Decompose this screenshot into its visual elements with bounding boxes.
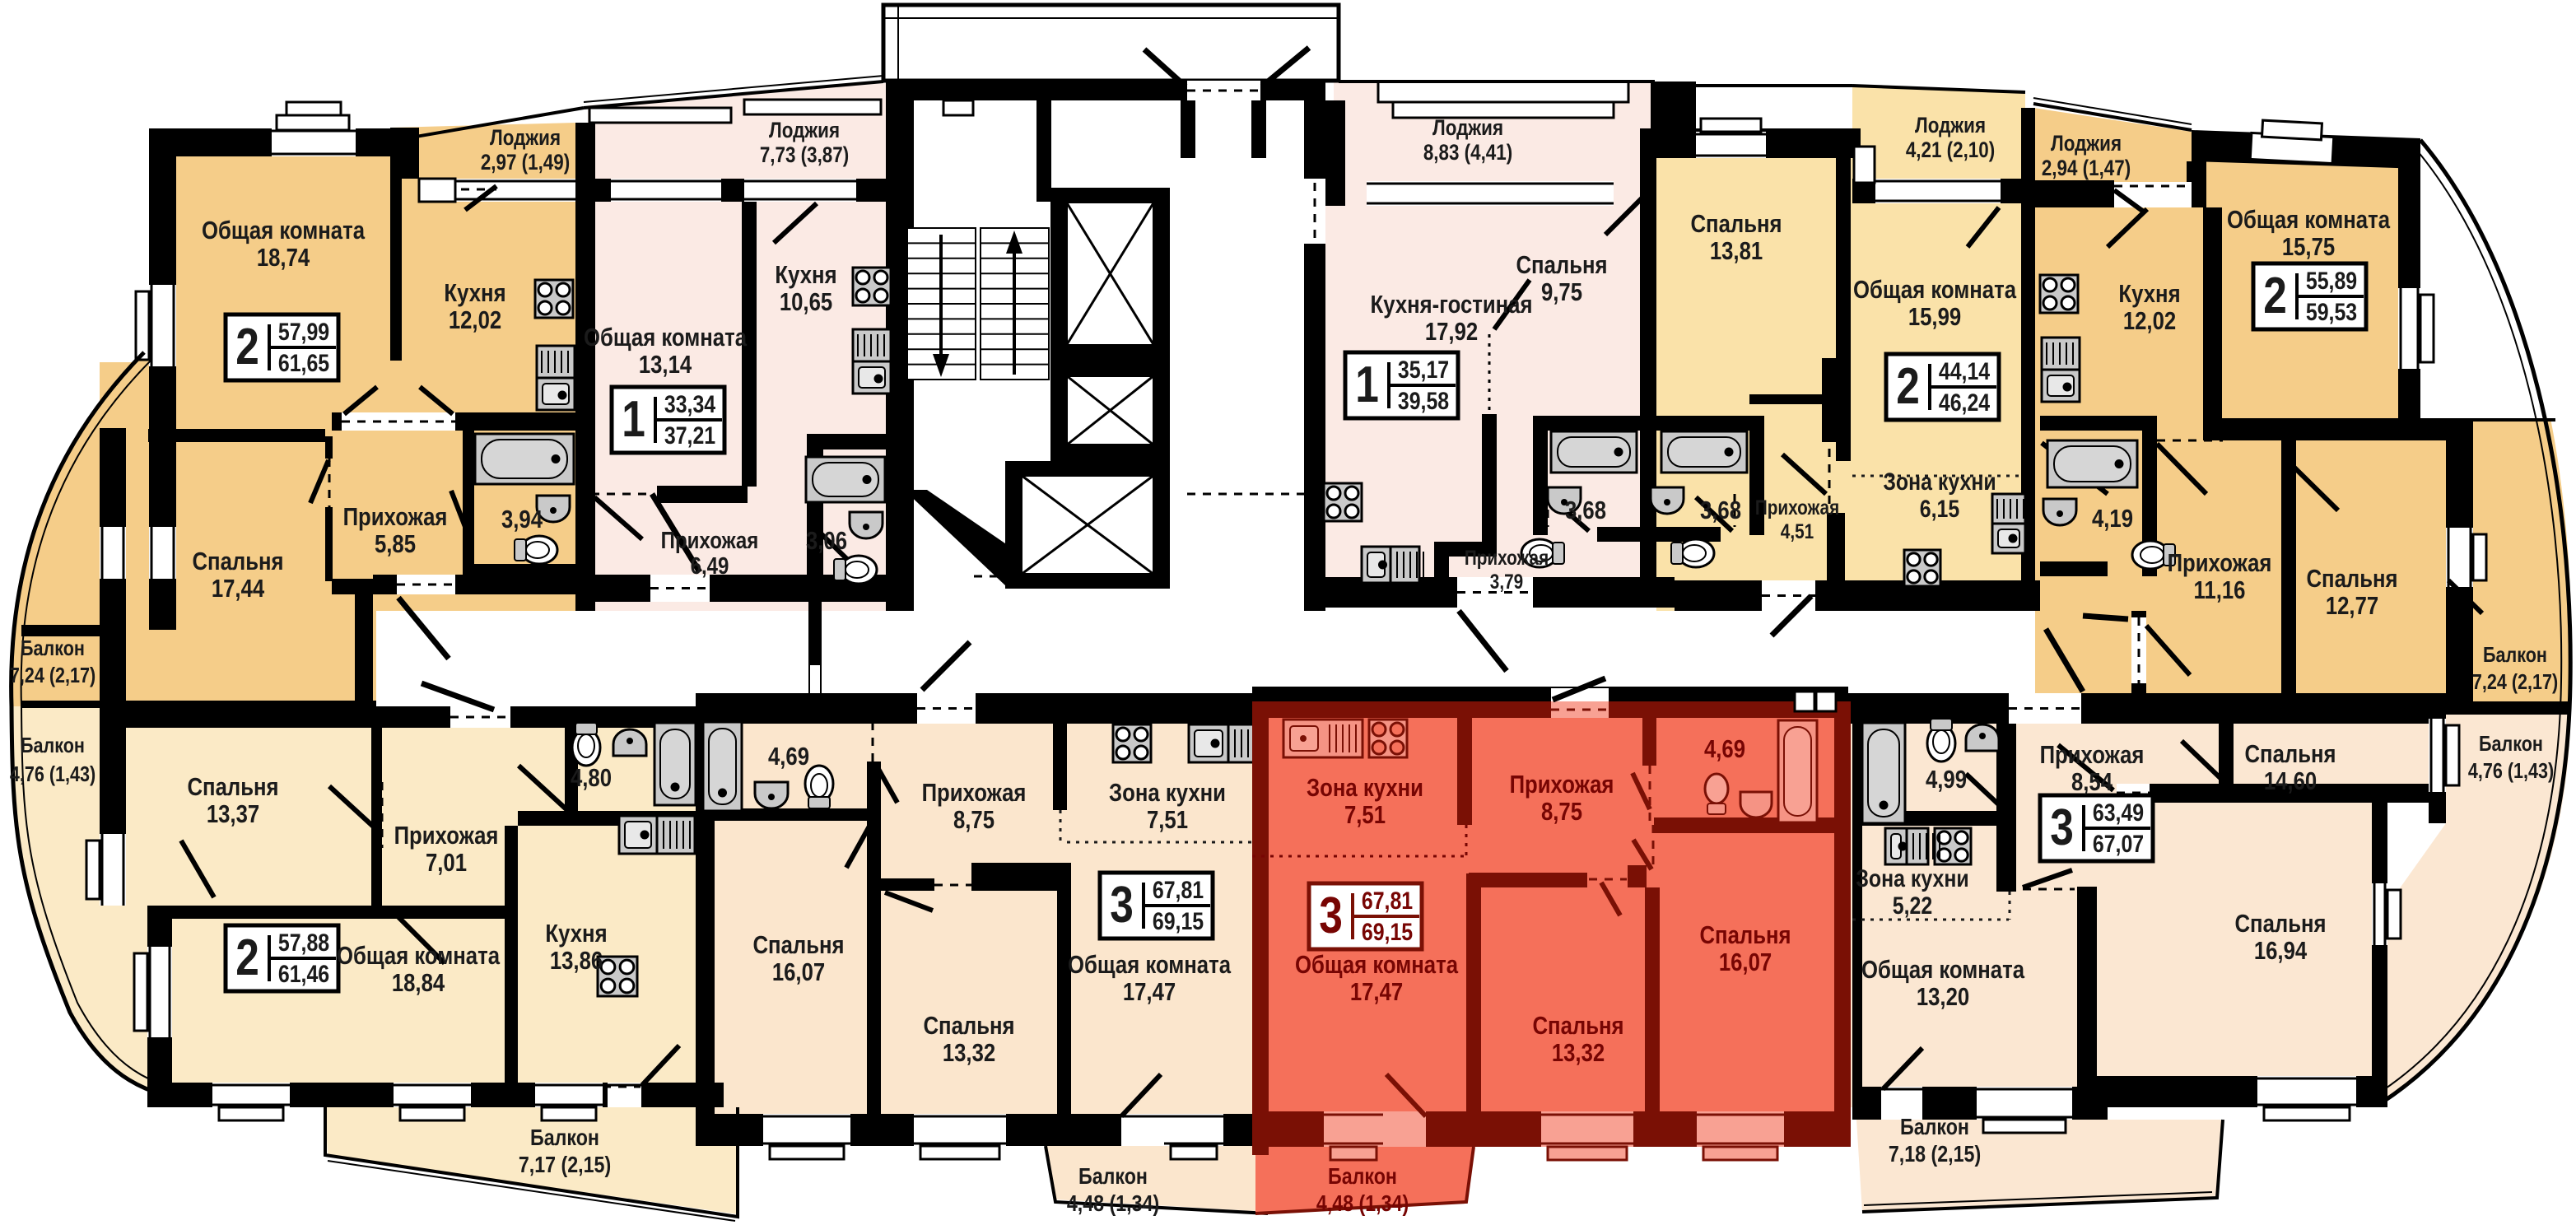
svg-text:7,01: 7,01 — [426, 849, 467, 878]
svg-text:18,84: 18,84 — [392, 969, 445, 998]
svg-text:Зона кухни: Зона кухни — [1307, 774, 1423, 803]
svg-text:63,49: 63,49 — [2093, 799, 2144, 827]
svg-text:8,83 (4,41): 8,83 (4,41) — [1423, 141, 1512, 165]
svg-text:14,60: 14,60 — [2264, 767, 2317, 796]
svg-text:Спальня: Спальня — [1690, 210, 1782, 239]
svg-text:Спальня: Спальня — [923, 1012, 1014, 1041]
svg-text:Прихожая: Прихожая — [394, 822, 499, 850]
svg-text:13,37: 13,37 — [207, 800, 259, 829]
svg-text:Кухня: Кухня — [775, 261, 836, 290]
svg-text:37,21: 37,21 — [664, 422, 715, 449]
svg-text:7,17 (2,15): 7,17 (2,15) — [519, 1153, 611, 1177]
svg-text:61,65: 61,65 — [278, 349, 329, 377]
svg-text:Спальня: Спальня — [192, 547, 283, 576]
svg-text:Спальня: Спальня — [1699, 921, 1791, 950]
svg-text:Прихожая: Прихожая — [922, 779, 1027, 808]
svg-text:6,49: 6,49 — [691, 552, 729, 580]
svg-text:2: 2 — [2263, 268, 2287, 325]
svg-text:Общая комната: Общая комната — [1295, 951, 1459, 980]
svg-text:Спальня: Спальня — [2234, 910, 2326, 939]
svg-text:Зона кухни: Зона кухни — [1856, 864, 1968, 892]
svg-text:7,18 (2,15): 7,18 (2,15) — [1889, 1142, 1981, 1167]
svg-text:8,75: 8,75 — [953, 806, 995, 835]
svg-text:3,68: 3,68 — [1565, 496, 1606, 525]
svg-text:15,99: 15,99 — [1908, 303, 1961, 332]
svg-text:Балкон: Балкон — [1078, 1164, 1148, 1189]
svg-text:35,17: 35,17 — [1398, 356, 1449, 384]
svg-text:Кухня-гостиная: Кухня-гостиная — [1371, 291, 1533, 319]
svg-text:4,69: 4,69 — [768, 743, 809, 771]
svg-text:Общая комната: Общая комната — [584, 324, 748, 352]
svg-text:Общая комната: Общая комната — [1861, 956, 2025, 985]
svg-text:67,81: 67,81 — [1153, 876, 1204, 904]
svg-text:15,75: 15,75 — [2282, 233, 2335, 262]
svg-text:4,48 (1,34): 4,48 (1,34) — [1067, 1191, 1159, 1216]
svg-text:Общая комната: Общая комната — [1068, 951, 1232, 980]
svg-text:7,24 (2,17): 7,24 (2,17) — [2472, 670, 2558, 694]
svg-text:13,20: 13,20 — [1917, 983, 1969, 1012]
svg-text:7,51: 7,51 — [1344, 801, 1386, 830]
svg-text:6,15: 6,15 — [1920, 495, 1959, 523]
svg-text:Лоджия: Лоджия — [2051, 132, 2122, 156]
svg-text:4,69: 4,69 — [1704, 735, 1745, 764]
svg-text:4,48 (1,34): 4,48 (1,34) — [1316, 1191, 1409, 1216]
svg-text:33,34: 33,34 — [664, 390, 716, 418]
svg-text:4,51: 4,51 — [1781, 519, 1814, 543]
svg-text:12,02: 12,02 — [449, 306, 501, 335]
svg-text:Прихожая: Прихожая — [1465, 546, 1549, 569]
svg-text:3,06: 3,06 — [806, 527, 847, 556]
svg-text:18,74: 18,74 — [257, 244, 310, 272]
svg-text:16,94: 16,94 — [2254, 937, 2307, 966]
svg-text:13,81: 13,81 — [1710, 237, 1763, 266]
svg-text:Кухня: Кухня — [444, 279, 505, 308]
svg-text:Балкон: Балкон — [21, 636, 85, 660]
svg-text:Прихожая: Прихожая — [343, 503, 448, 532]
svg-text:39,58: 39,58 — [1398, 387, 1449, 415]
svg-text:4,76 (1,43): 4,76 (1,43) — [10, 762, 95, 786]
svg-text:10,65: 10,65 — [780, 288, 832, 317]
svg-text:44,14: 44,14 — [1939, 357, 1991, 385]
svg-text:69,15: 69,15 — [1153, 907, 1204, 935]
svg-text:17,44: 17,44 — [212, 575, 264, 603]
svg-text:Балкон: Балкон — [530, 1125, 599, 1150]
svg-text:3,68: 3,68 — [1700, 496, 1741, 525]
svg-text:57,88: 57,88 — [278, 929, 329, 957]
svg-text:13,32: 13,32 — [943, 1039, 995, 1068]
svg-text:5,85: 5,85 — [375, 530, 416, 559]
svg-text:Прихожая: Прихожая — [2040, 741, 2145, 770]
svg-text:46,24: 46,24 — [1939, 389, 1991, 417]
svg-text:2: 2 — [1896, 358, 1920, 416]
svg-text:3,79: 3,79 — [1490, 570, 1523, 593]
svg-text:2,94 (1,47): 2,94 (1,47) — [2042, 156, 2131, 180]
svg-text:17,47: 17,47 — [1350, 978, 1403, 1007]
svg-text:Лоджия: Лоджия — [1432, 116, 1503, 140]
svg-text:59,53: 59,53 — [2306, 298, 2357, 326]
svg-text:16,07: 16,07 — [772, 958, 825, 987]
svg-text:8,54: 8,54 — [2071, 768, 2113, 797]
svg-text:Лоджия: Лоджия — [490, 126, 561, 150]
svg-text:3: 3 — [2050, 799, 2074, 857]
svg-text:3,94: 3,94 — [501, 505, 543, 534]
svg-text:Балкон: Балкон — [1328, 1164, 1397, 1189]
svg-text:55,89: 55,89 — [2306, 267, 2357, 295]
svg-text:Кухня: Кухня — [545, 920, 607, 948]
svg-text:13,32: 13,32 — [1552, 1039, 1605, 1068]
svg-text:Прихожая: Прихожая — [1755, 496, 1839, 519]
svg-text:Кухня: Кухня — [2118, 280, 2180, 309]
svg-text:4,99: 4,99 — [1926, 766, 1967, 794]
svg-text:Зона кухни: Зона кухни — [1109, 779, 1226, 808]
svg-text:Зона кухни: Зона кухни — [1883, 468, 1996, 496]
svg-text:67,07: 67,07 — [2093, 830, 2144, 858]
svg-text:Лоджия: Лоджия — [1915, 114, 1986, 137]
svg-text:4,21 (2,10): 4,21 (2,10) — [1906, 138, 1995, 162]
svg-text:4,80: 4,80 — [571, 764, 612, 793]
svg-text:Балкон: Балкон — [21, 734, 85, 757]
svg-text:8,75: 8,75 — [1541, 798, 1582, 827]
svg-text:11,16: 11,16 — [2194, 576, 2246, 605]
svg-text:3: 3 — [1110, 877, 1134, 934]
svg-text:7,24 (2,17): 7,24 (2,17) — [10, 664, 95, 687]
svg-text:3: 3 — [1319, 887, 1343, 945]
svg-text:12,02: 12,02 — [2123, 307, 2176, 336]
svg-text:61,46: 61,46 — [278, 960, 329, 988]
svg-text:Прихожая: Прихожая — [2168, 549, 2272, 578]
svg-text:2: 2 — [235, 929, 259, 987]
svg-text:13,86: 13,86 — [550, 947, 603, 976]
svg-text:Прихожая: Прихожая — [1510, 771, 1614, 799]
svg-text:17,92: 17,92 — [1425, 318, 1478, 347]
svg-text:Лоджия: Лоджия — [769, 119, 840, 142]
svg-text:Балкон: Балкон — [1900, 1115, 1969, 1139]
svg-text:2: 2 — [235, 319, 259, 376]
svg-text:16,07: 16,07 — [1719, 948, 1772, 977]
svg-text:7,73 (3,87): 7,73 (3,87) — [760, 143, 849, 167]
svg-text:Балкон: Балкон — [2483, 643, 2547, 667]
svg-text:Спальня: Спальня — [2306, 565, 2397, 594]
svg-text:13,14: 13,14 — [639, 351, 692, 380]
svg-text:Спальня: Спальня — [1516, 251, 1607, 280]
svg-text:57,99: 57,99 — [278, 318, 329, 346]
svg-text:Общая комната: Общая комната — [202, 217, 366, 245]
svg-text:1: 1 — [1355, 356, 1379, 414]
svg-text:4,76 (1,43): 4,76 (1,43) — [2468, 759, 2554, 783]
svg-text:Общая комната: Общая комната — [337, 942, 501, 971]
svg-text:9,75: 9,75 — [1541, 278, 1582, 307]
svg-text:Общая комната: Общая комната — [1853, 276, 2017, 305]
svg-text:5,22: 5,22 — [1893, 892, 1932, 920]
svg-text:7,51: 7,51 — [1147, 806, 1188, 835]
svg-text:Спальня: Спальня — [1532, 1012, 1623, 1041]
svg-text:Балкон: Балкон — [2479, 732, 2543, 756]
svg-text:2,97 (1,49): 2,97 (1,49) — [481, 151, 570, 175]
svg-text:Общая комната: Общая комната — [2227, 206, 2391, 235]
svg-text:67,81: 67,81 — [1362, 887, 1413, 915]
svg-text:12,77: 12,77 — [2326, 592, 2378, 621]
svg-text:69,15: 69,15 — [1362, 918, 1413, 946]
svg-text:Спальня: Спальня — [752, 931, 844, 960]
svg-text:1: 1 — [622, 391, 645, 449]
svg-text:Спальня: Спальня — [2244, 740, 2336, 769]
svg-text:4,19: 4,19 — [2092, 505, 2133, 533]
svg-text:Прихожая: Прихожая — [661, 527, 759, 554]
svg-text:Спальня: Спальня — [187, 773, 278, 802]
svg-text:17,47: 17,47 — [1123, 978, 1176, 1007]
